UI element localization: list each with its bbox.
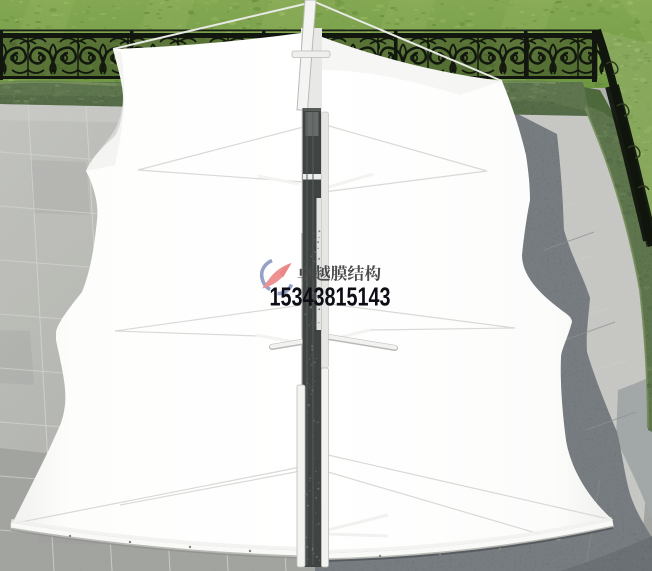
svg-text:15343815143: 15343815143 <box>270 282 391 312</box>
